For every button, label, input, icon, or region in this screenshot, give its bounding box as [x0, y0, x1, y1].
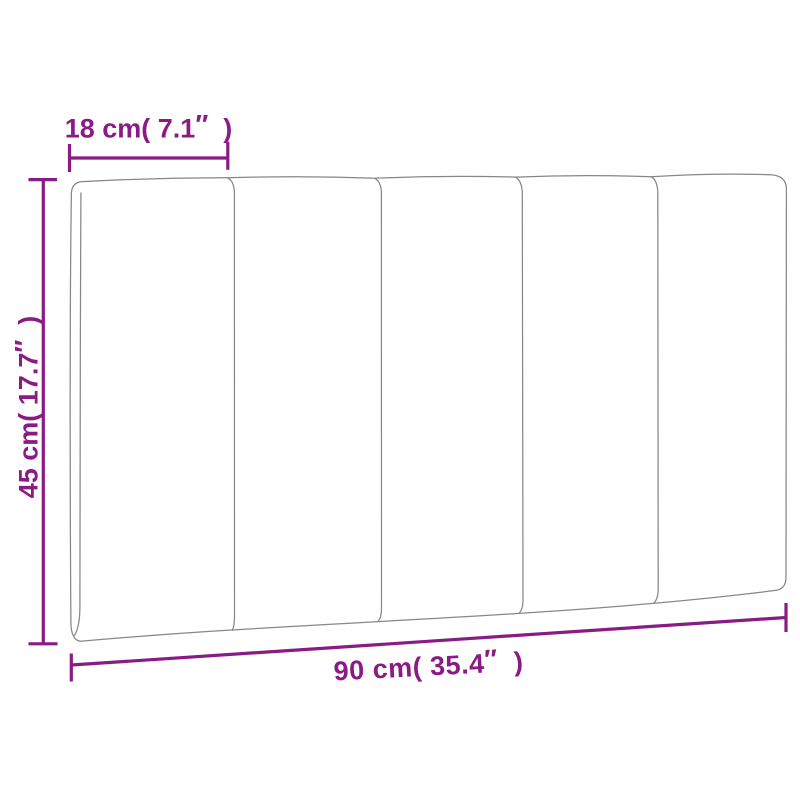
svg-text:90 cm( 35.4″ ): 90 cm( 35.4″ ) [333, 643, 525, 687]
svg-text:18 cm( 7.1″ ): 18 cm( 7.1″ ) [65, 110, 233, 144]
svg-text:45 cm( 17.7″ ): 45 cm( 17.7″ ) [10, 316, 44, 499]
